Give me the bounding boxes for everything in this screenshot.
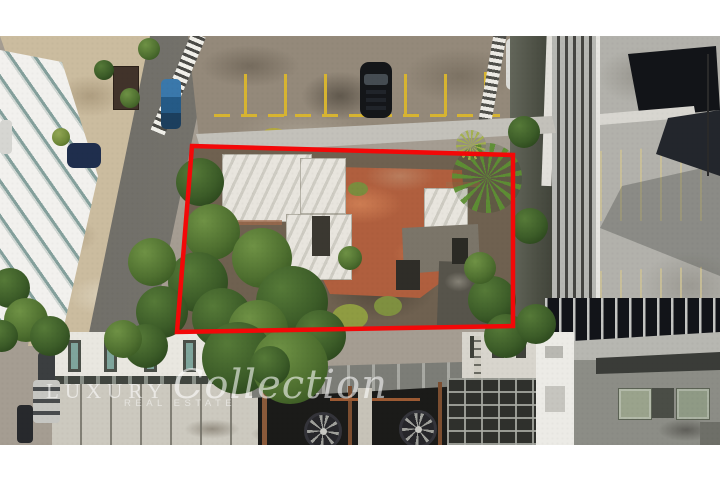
page-frame: LUXURY Collection REAL ESTATE [0,0,720,480]
top-white-margin [0,0,720,36]
bottom-white-margin [0,445,720,480]
aerial-photo: LUXURY Collection REAL ESTATE [0,36,720,445]
property-boundary-line [177,146,513,332]
watermark-tagline: REAL ESTATE [124,398,236,409]
